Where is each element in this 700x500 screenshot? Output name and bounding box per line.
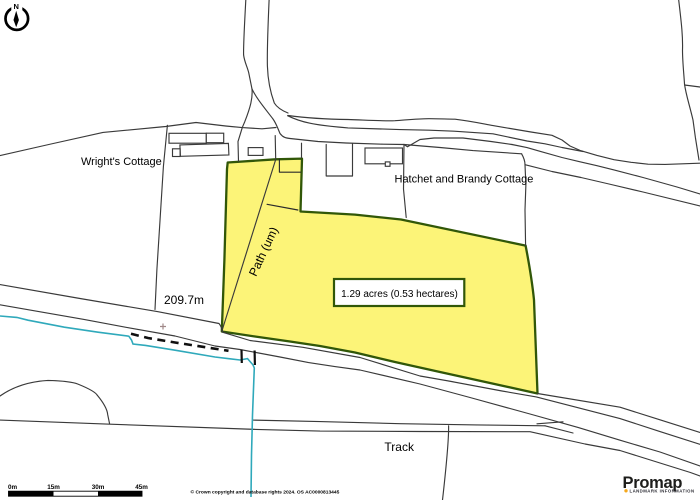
svg-text:209.7m: 209.7m xyxy=(164,293,204,307)
svg-text:N: N xyxy=(13,2,18,11)
svg-text:Track: Track xyxy=(384,440,415,454)
svg-text:Wright's Cottage: Wright's Cottage xyxy=(81,156,162,168)
svg-text:15m: 15m xyxy=(47,484,60,491)
svg-text:LANDMARK INFORMATION: LANDMARK INFORMATION xyxy=(630,489,695,494)
svg-text:45m: 45m xyxy=(135,484,148,491)
svg-text:Hatchet and Brandy Cottage: Hatchet and Brandy Cottage xyxy=(395,173,534,185)
svg-text:1.29 acres (0.53 hectares): 1.29 acres (0.53 hectares) xyxy=(341,289,458,300)
svg-text:© Crown copyright and database: © Crown copyright and database rights 20… xyxy=(191,489,340,496)
svg-text:30m: 30m xyxy=(92,484,105,491)
svg-text:0m: 0m xyxy=(8,484,18,491)
